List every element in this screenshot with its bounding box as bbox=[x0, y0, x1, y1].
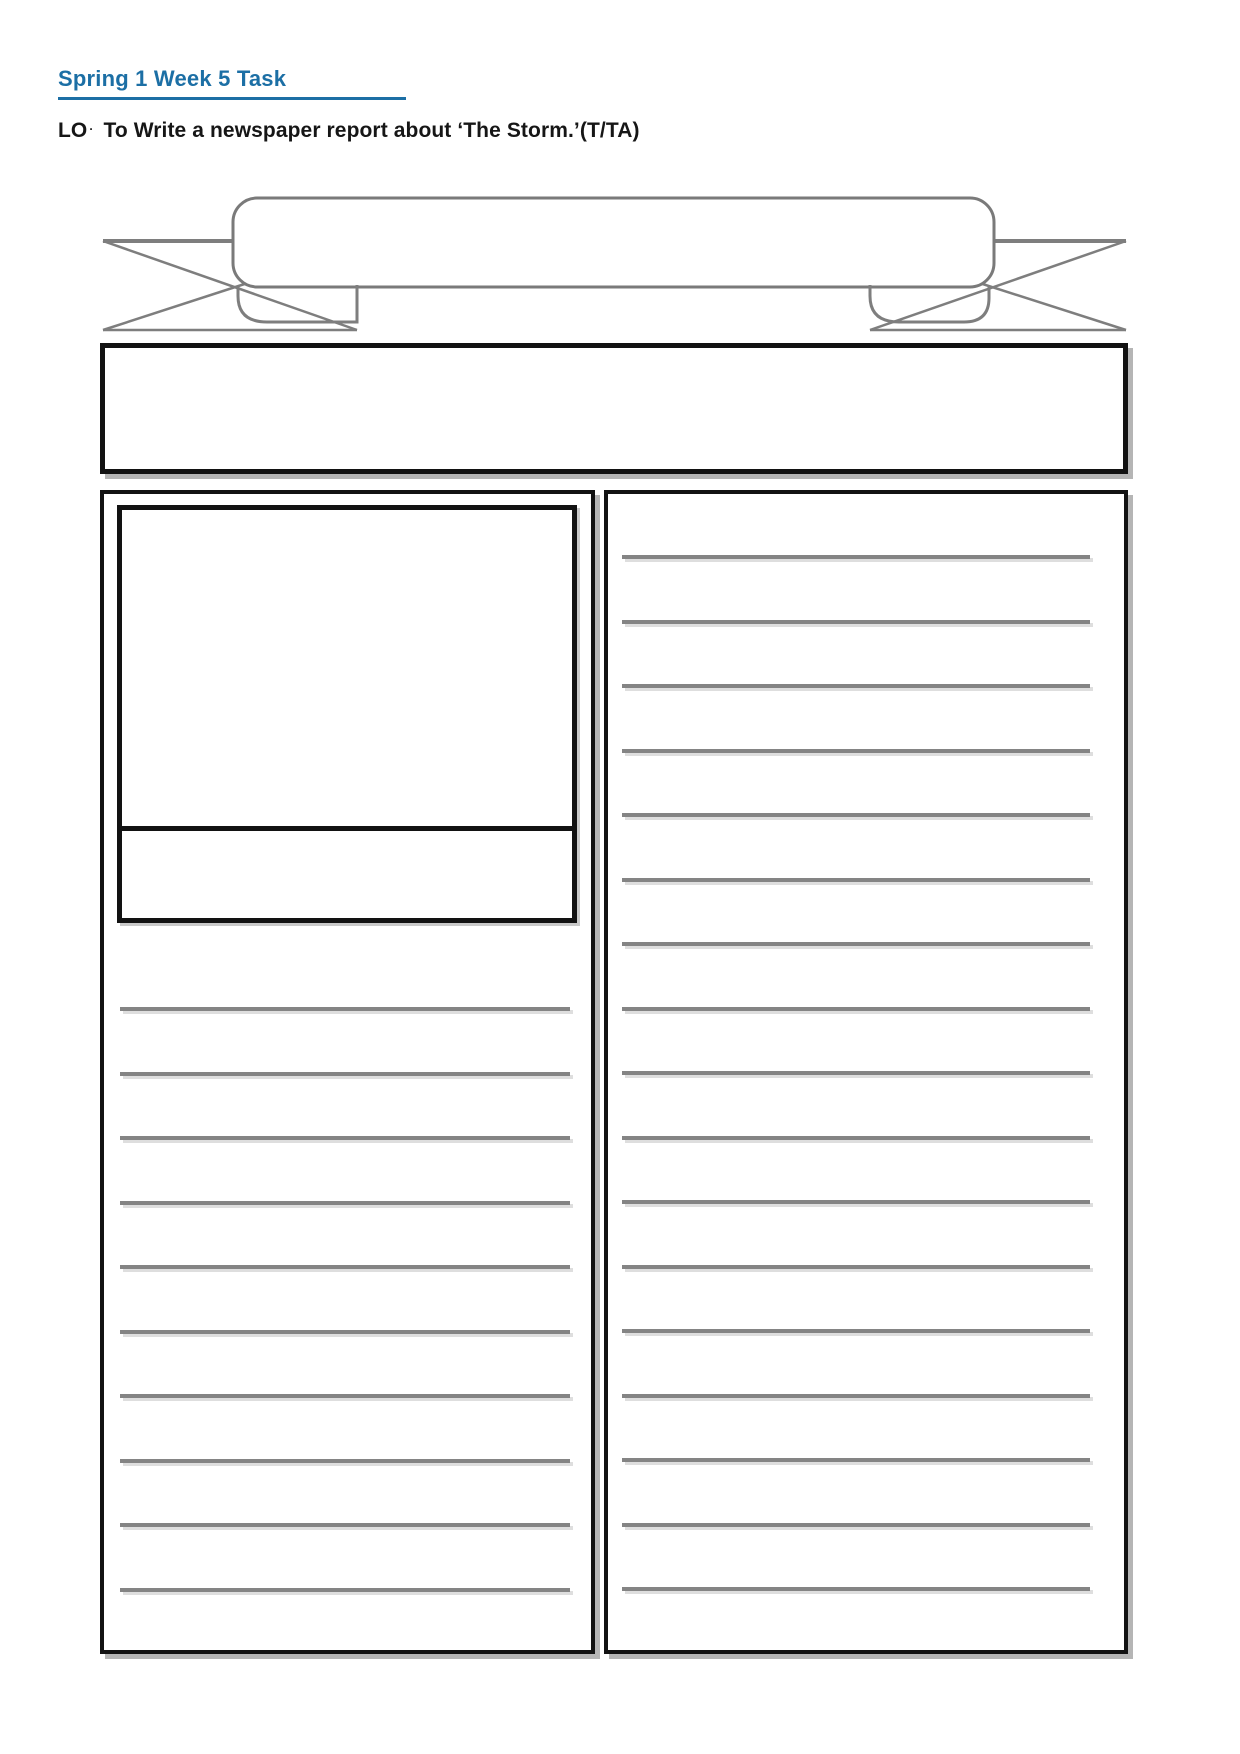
ruled-line bbox=[120, 1330, 570, 1334]
ruled-line bbox=[120, 1459, 570, 1463]
ruled-line bbox=[622, 878, 1090, 882]
right-column bbox=[604, 490, 1128, 1654]
picture-box[interactable] bbox=[117, 505, 577, 923]
ruled-line bbox=[120, 1007, 570, 1011]
ruled-line bbox=[622, 942, 1090, 946]
ruled-line bbox=[622, 555, 1090, 559]
left-column-writing-lines[interactable] bbox=[120, 1007, 570, 1592]
ruled-line bbox=[622, 620, 1090, 624]
ruled-line bbox=[120, 1072, 570, 1076]
picture-area[interactable] bbox=[122, 510, 572, 826]
ruled-line bbox=[120, 1588, 570, 1592]
page-title-underline: Spring 1 Week 5 Task bbox=[58, 66, 406, 100]
page-title: Spring 1 Week 5 Task bbox=[58, 66, 286, 91]
ruled-line bbox=[622, 684, 1090, 688]
ruled-line bbox=[120, 1201, 570, 1205]
worksheet-page: Spring 1 Week 5 Task LO·To Write a newsp… bbox=[0, 0, 1240, 1754]
ruled-line bbox=[622, 1200, 1090, 1204]
ruled-line bbox=[622, 1523, 1090, 1527]
right-column-writing-lines[interactable] bbox=[622, 555, 1090, 1591]
ruled-line bbox=[622, 1265, 1090, 1269]
learning-objective: LO·To Write a newspaper report about ‘Th… bbox=[58, 119, 640, 143]
ruled-line bbox=[622, 1458, 1090, 1462]
caption-box[interactable] bbox=[122, 831, 572, 918]
ruled-line bbox=[622, 749, 1090, 753]
ruled-line bbox=[120, 1136, 570, 1140]
ruled-line bbox=[120, 1394, 570, 1398]
ruled-line bbox=[622, 1394, 1090, 1398]
ruled-line bbox=[622, 813, 1090, 817]
ruled-line bbox=[622, 1136, 1090, 1140]
learning-objective-prefix: LO bbox=[58, 119, 87, 142]
learning-objective-text: To Write a newspaper report about ‘The S… bbox=[95, 119, 639, 142]
ruled-line bbox=[622, 1587, 1090, 1591]
left-column bbox=[100, 490, 595, 1654]
ruled-line bbox=[622, 1071, 1090, 1075]
headline-box[interactable] bbox=[100, 343, 1128, 474]
banner-band[interactable] bbox=[233, 198, 994, 287]
ruled-line bbox=[120, 1523, 570, 1527]
ribbon-banner-icon bbox=[95, 172, 1135, 337]
ruled-line bbox=[120, 1265, 570, 1269]
ruled-line bbox=[622, 1329, 1090, 1333]
ruled-line bbox=[622, 1007, 1090, 1011]
